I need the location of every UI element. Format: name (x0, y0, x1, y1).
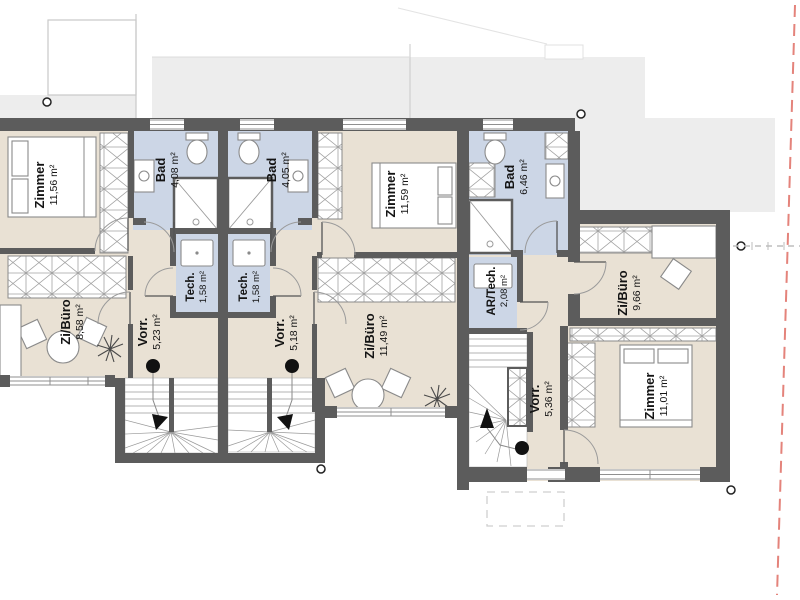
room-name: AR/Tech. (486, 267, 498, 316)
room-area: 2,08 m² (499, 275, 510, 307)
room-area: 1,58 m² (251, 271, 262, 303)
room-area: 11,49 m² (378, 315, 390, 356)
stair-start-dot-3 (515, 441, 529, 455)
label-zimmer-2: Zimmer 11,59 m² (383, 171, 411, 218)
room-name: Zi/Büro (58, 299, 73, 345)
roof-skylight-outline (48, 20, 136, 95)
furniture-cutoff-left (0, 305, 21, 378)
label-vorr-1: Vorr. 5,23 m² (135, 314, 163, 350)
wardrobe-band-unit-3 (570, 328, 716, 341)
room-area: 5,23 m² (151, 314, 163, 350)
room-name: Zimmer (642, 373, 657, 420)
room-area: 1,58 m² (198, 271, 209, 303)
toilet-bad-2 (238, 133, 260, 164)
wardrobe-zimmer-2 (318, 133, 342, 219)
room-name: Bad (153, 158, 168, 183)
label-zimmer-3: Zimmer 11,01 m² (642, 373, 670, 420)
label-zibuero-3: Zi/Büro 9,66 m² (615, 270, 643, 316)
room-name: Vorr. (272, 319, 287, 348)
window-bottom-unit-1 (10, 376, 105, 386)
room-area: 11,59 m² (399, 173, 411, 214)
room-name: Vorr. (135, 318, 150, 347)
room-name: Zimmer (32, 162, 47, 209)
cupboard-bad-3 (545, 133, 568, 159)
window-top-3 (343, 119, 406, 130)
room-area: 8,58 m² (74, 304, 86, 340)
window-top-4 (483, 119, 513, 130)
window-bottom-unit-2 (337, 407, 445, 417)
shower-bad-2 (228, 178, 272, 230)
property-boundary-line (777, 5, 795, 595)
room-name: Zimmer (383, 171, 398, 218)
room-name: Bad (264, 158, 279, 183)
label-zimmer-1: Zimmer 11,56 m² (32, 162, 60, 209)
floor-plan-svg: Zimmer 11,56 m² Bad 4,08 m² Tech. 1,58 m… (0, 0, 800, 600)
floor-plan-page: Zimmer 11,56 m² Bad 4,08 m² Tech. 1,58 m… (0, 0, 800, 600)
room-area: 5,18 m² (288, 315, 300, 351)
balcony-door-unit-3 (527, 469, 565, 480)
washbasin-bad-1 (134, 160, 154, 192)
room-name: Zi/Büro (362, 313, 377, 359)
room-area: 11,56 m² (48, 164, 60, 205)
wardrobe-zibuero-1 (8, 256, 126, 298)
label-vorr-2: Vorr. 5,18 m² (272, 315, 300, 351)
toilet-bad-1 (186, 133, 208, 164)
window-bottom-unit-3 (600, 469, 700, 480)
stair-start-dot-2 (285, 359, 299, 373)
wardrobe-zibuero-3 (570, 227, 652, 253)
label-zibuero-2: Zi/Büro 11,49 m² (362, 313, 390, 359)
room-name: Zi/Büro (615, 270, 630, 316)
toilet-bad-3 (484, 133, 506, 164)
label-vorr-3: Vorr. 5,36 m² (527, 381, 555, 417)
wardrobe-zimmer-1 (100, 133, 128, 253)
room-area: 4,05 m² (280, 152, 292, 188)
washbasin-bad-3 (546, 164, 564, 198)
dashed-outline-below (487, 492, 564, 526)
room-name: Tech. (238, 272, 250, 301)
room-name: Vorr. (527, 385, 542, 414)
room-area: 11,01 m² (658, 375, 670, 416)
wardrobe-zibuero-2 (318, 258, 455, 302)
room-area: 4,08 m² (169, 152, 181, 188)
room-area: 9,66 m² (631, 275, 643, 311)
room-name: Tech. (185, 272, 197, 301)
wardrobe-zimmer-3 (567, 343, 595, 427)
desk-zibuero-3 (652, 226, 716, 258)
shaft-unit-3 (508, 368, 527, 426)
stair-start-dot-1 (146, 359, 160, 373)
room-name: Bad (502, 165, 517, 190)
shower-bad-3 (469, 200, 512, 253)
window-top-2 (240, 119, 274, 130)
label-zibuero-1: Zi/Büro 8,58 m² (58, 299, 86, 345)
shelf-bad-3 (469, 163, 495, 197)
room-area: 6,46 m² (518, 159, 530, 195)
window-top-1 (150, 119, 184, 130)
room-area: 5,36 m² (543, 381, 555, 417)
